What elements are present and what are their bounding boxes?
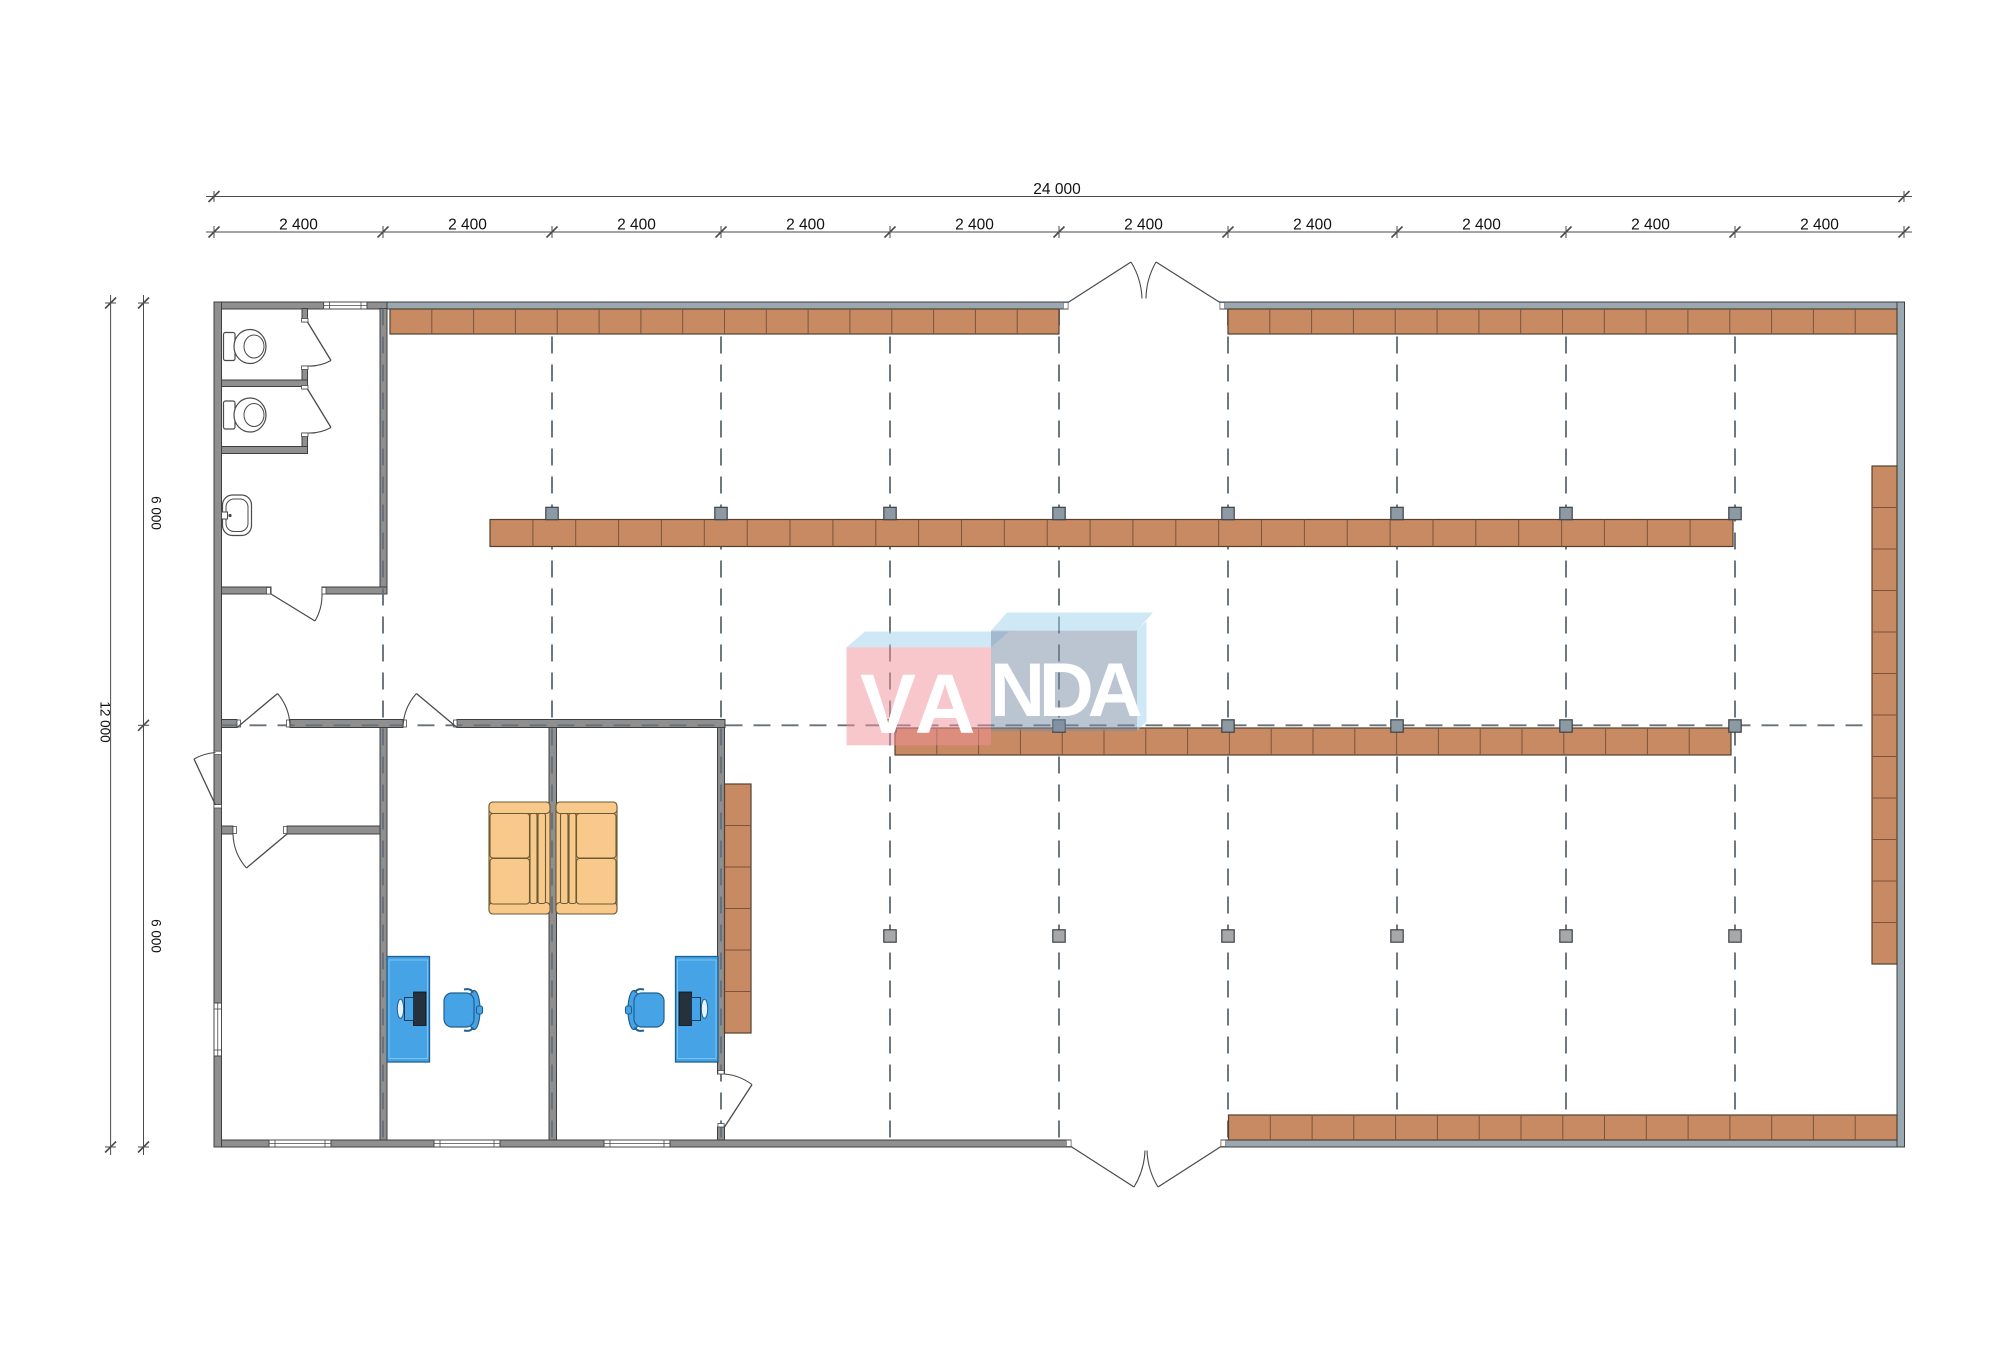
svg-text:2 400: 2 400 bbox=[1124, 217, 1163, 234]
svg-text:2 400: 2 400 bbox=[955, 217, 994, 234]
svg-text:2 400: 2 400 bbox=[786, 217, 825, 234]
svg-text:2 400: 2 400 bbox=[1800, 217, 1839, 234]
svg-text:6 000: 6 000 bbox=[149, 919, 164, 953]
svg-text:2 400: 2 400 bbox=[1462, 217, 1501, 234]
svg-text:2 400: 2 400 bbox=[1293, 217, 1332, 234]
svg-text:6 000: 6 000 bbox=[149, 496, 164, 530]
svg-text:NDA: NDA bbox=[990, 648, 1141, 733]
svg-text:12 000: 12 000 bbox=[98, 701, 113, 742]
svg-text:24 000: 24 000 bbox=[1033, 181, 1081, 198]
svg-text:2 400: 2 400 bbox=[1631, 217, 1670, 234]
svg-text:VA: VA bbox=[860, 657, 980, 751]
svg-text:2 400: 2 400 bbox=[617, 217, 656, 234]
svg-text:2 400: 2 400 bbox=[448, 217, 487, 234]
svg-text:2 400: 2 400 bbox=[279, 217, 318, 234]
